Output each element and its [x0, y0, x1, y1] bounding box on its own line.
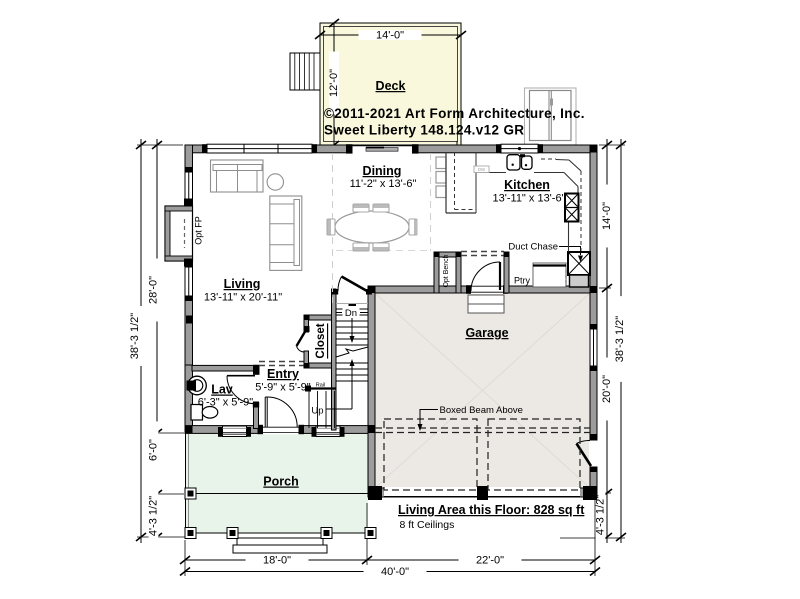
svg-text:Dining: Dining — [363, 164, 402, 178]
svg-text:Entry: Entry — [267, 367, 299, 381]
svg-text:Rail: Rail — [316, 383, 325, 389]
svg-text:13'-11" x 13'-6": 13'-11" x 13'-6" — [493, 193, 566, 205]
svg-text:6'-3" x 5'-9": 6'-3" x 5'-9" — [198, 397, 254, 409]
svg-text:DW: DW — [478, 167, 485, 172]
svg-text:Opt FP: Opt FP — [194, 216, 204, 245]
svg-text:22'-0": 22'-0" — [476, 555, 504, 567]
svg-text:Dn: Dn — [345, 308, 357, 319]
svg-text:20'-0": 20'-0" — [601, 375, 613, 403]
svg-text:38'-3 1/2": 38'-3 1/2" — [614, 316, 626, 362]
svg-text:Closet: Closet — [315, 323, 327, 358]
svg-text:13'-11" x 20'-11": 13'-11" x 20'-11" — [204, 292, 282, 304]
svg-text:12'-0": 12'-0" — [328, 69, 340, 97]
svg-text:Living Area this Floor: 828 sq: Living Area this Floor: 828 sq ft — [398, 503, 585, 517]
svg-text:6'-0": 6'-0" — [148, 439, 160, 461]
svg-text:Kitchen: Kitchen — [504, 178, 550, 192]
svg-text:38'-3 1/2": 38'-3 1/2" — [129, 313, 141, 359]
svg-text:14'-0": 14'-0" — [376, 30, 404, 42]
svg-text:©2011-2021 Art Form Architectu: ©2011-2021 Art Form Architecture, Inc. — [324, 106, 585, 121]
svg-text:Lav: Lav — [211, 383, 233, 397]
svg-text:11'-2" x 13'-6": 11'-2" x 13'-6" — [350, 178, 417, 190]
svg-text:Up: Up — [311, 406, 323, 417]
svg-text:Living: Living — [224, 277, 261, 291]
svg-text:Porch: Porch — [263, 475, 298, 489]
svg-text:4'-3 1/2": 4'-3 1/2" — [148, 496, 160, 536]
svg-text:14'-0": 14'-0" — [601, 202, 613, 230]
svg-text:18'-0": 18'-0" — [263, 555, 291, 567]
svg-text:Boxed Beam Above: Boxed Beam Above — [440, 405, 523, 416]
svg-text:40'-0": 40'-0" — [381, 566, 409, 578]
svg-text:Ptry: Ptry — [514, 276, 531, 286]
svg-text:4'-3 1/2": 4'-3 1/2" — [595, 495, 607, 535]
svg-text:28'-0": 28'-0" — [148, 276, 160, 304]
svg-text:8 ft Ceilings: 8 ft Ceilings — [400, 519, 455, 531]
svg-text:Opt Bench: Opt Bench — [443, 254, 450, 287]
svg-text:Garage: Garage — [465, 326, 508, 340]
svg-text:Sweet Liberty 148.124.v12 GR: Sweet Liberty 148.124.v12 GR — [324, 123, 524, 138]
svg-text:Deck: Deck — [376, 79, 406, 93]
svg-text:Duct Chase: Duct Chase — [508, 242, 558, 253]
svg-text:5'-9" x 5'-9": 5'-9" x 5'-9" — [255, 382, 311, 394]
